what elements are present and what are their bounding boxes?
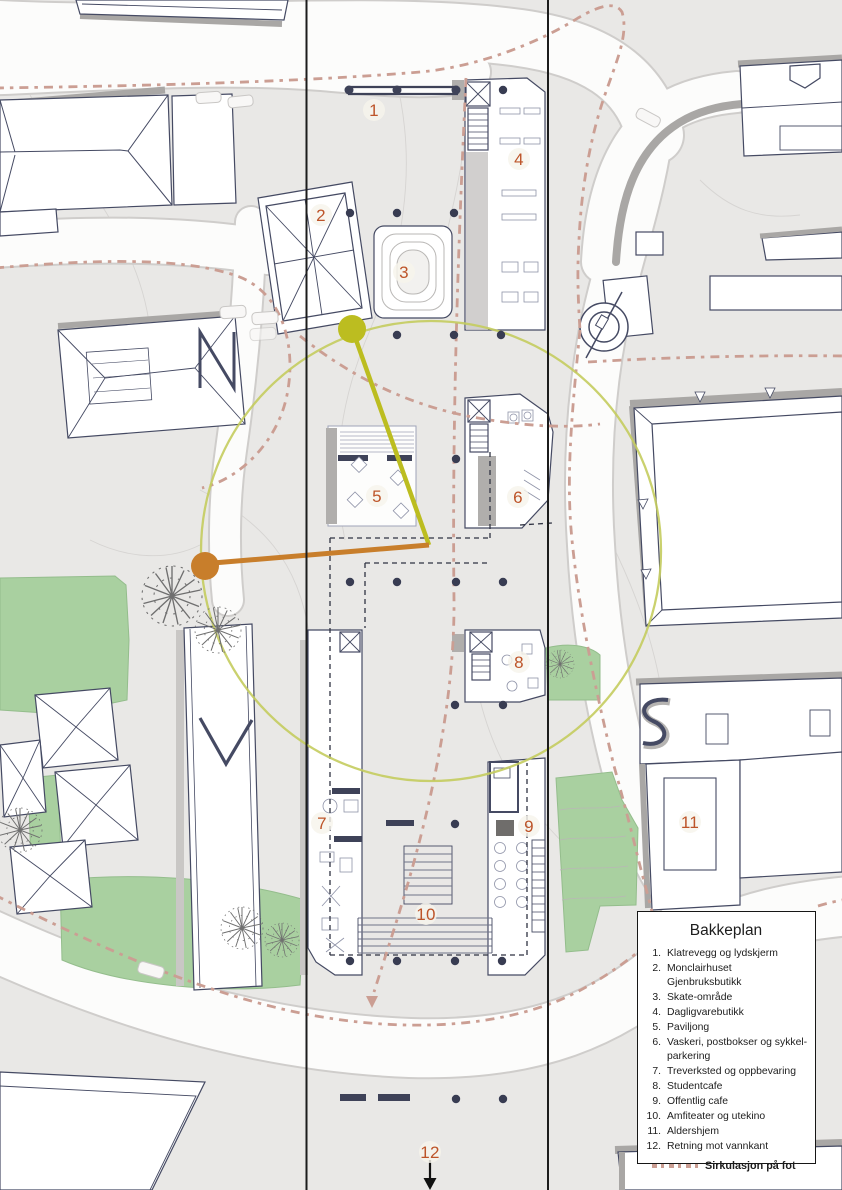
legend-item-number: 7. <box>644 1065 661 1079</box>
legend-item-label: Aldershjem <box>667 1125 808 1139</box>
legend-item-number: 3. <box>644 991 661 1005</box>
legend-item-label: Klatrevegg og lydskjerm <box>667 947 808 961</box>
legend-item: 10.Amfiteater og utekino <box>644 1110 808 1124</box>
legend-item-number: 10. <box>644 1110 661 1124</box>
legend-item-label: Dagligvarebutikk <box>667 1006 808 1020</box>
plan-label-6: 6 <box>507 486 529 508</box>
legend-item-number: 8. <box>644 1080 661 1094</box>
site-plan-sheet: 123456789101112 Bakkeplan 1.Klatrevegg o… <box>0 0 842 1190</box>
legend-item-label: Studentcafe <box>667 1080 808 1094</box>
legend-item: 2.Monclairhuset Gjenbruksbutikk <box>644 962 808 989</box>
legend-item-label: Offentlig cafe <box>667 1095 808 1109</box>
legend-item-number: 2. <box>644 962 661 989</box>
legend-item: 6.Vaskeri, postbokser og sykkel-parkerin… <box>644 1036 808 1063</box>
plan-label-7: 7 <box>311 812 333 834</box>
legend-item-number: 4. <box>644 1006 661 1020</box>
legend-item: 11.Aldershjem <box>644 1125 808 1139</box>
circulation-dash-icon <box>652 1164 698 1168</box>
legend-item: 4.Dagligvarebutikk <box>644 1006 808 1020</box>
plan-label-10: 10 <box>415 903 437 925</box>
legend-item: 3.Skate-område <box>644 991 808 1005</box>
legend-title: Bakkeplan <box>644 922 808 940</box>
plan-label-2: 2 <box>310 204 332 226</box>
legend-item-label: Amfiteater og utekino <box>667 1110 808 1124</box>
legend-item: 5.Paviljong <box>644 1021 808 1035</box>
plan-label-12: 12 <box>419 1141 441 1163</box>
legend-item-number: 11. <box>644 1125 661 1139</box>
legend-item-number: 6. <box>644 1036 661 1063</box>
plan-label-3: 3 <box>393 261 415 283</box>
legend-item-number: 12. <box>644 1140 661 1154</box>
legend-item-label: Skate-område <box>667 991 808 1005</box>
legend-item-number: 9. <box>644 1095 661 1109</box>
legend-item-label: Treverksted og oppbevaring <box>667 1065 808 1079</box>
legend-item-label: Monclairhuset Gjenbruksbutikk <box>667 962 808 989</box>
legend-item: 7.Treverksted og oppbevaring <box>644 1065 808 1079</box>
legend-footer: Sirkulasjon på fot <box>644 1160 808 1172</box>
legend-footer-label: Sirkulasjon på fot <box>705 1160 796 1172</box>
plan-label-5: 5 <box>366 485 388 507</box>
legend-panel: Bakkeplan 1.Klatrevegg og lydskjerm2.Mon… <box>637 911 816 1164</box>
plan-label-8: 8 <box>508 651 530 673</box>
legend-item-label: Vaskeri, postbokser og sykkel-parkering <box>667 1036 808 1063</box>
plan-label-9: 9 <box>518 815 540 837</box>
legend-item-number: 1. <box>644 947 661 961</box>
legend-item-label: Paviljong <box>667 1021 808 1035</box>
legend-item: 8.Studentcafe <box>644 1080 808 1094</box>
legend-item: 12.Retning mot vannkant <box>644 1140 808 1154</box>
legend-items: 1.Klatrevegg og lydskjerm2.Monclairhuset… <box>644 947 808 1154</box>
legend-item: 1.Klatrevegg og lydskjerm <box>644 947 808 961</box>
plan-label-1: 1 <box>363 99 385 121</box>
legend-item-label: Retning mot vannkant <box>667 1140 808 1154</box>
legend-item-number: 5. <box>644 1021 661 1035</box>
legend-item: 9.Offentlig cafe <box>644 1095 808 1109</box>
plan-label-11: 11 <box>679 811 701 833</box>
plan-label-4: 4 <box>508 148 530 170</box>
